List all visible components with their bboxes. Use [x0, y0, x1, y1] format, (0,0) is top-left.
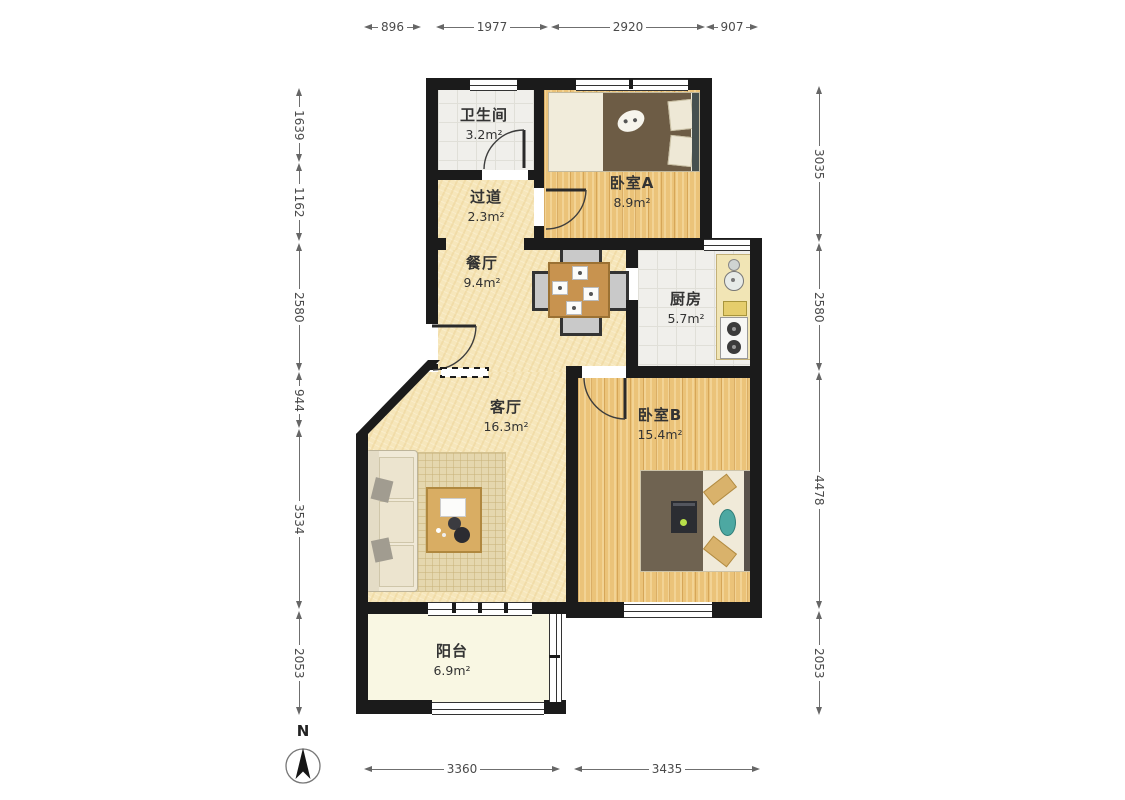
- burner-icon: [727, 322, 741, 336]
- room-name: 餐厅: [463, 252, 500, 273]
- dimension-top-2: 1977: [436, 20, 548, 34]
- entry-door-opening: [426, 324, 438, 364]
- wall: [712, 602, 762, 618]
- bedroom-b-door-opening: [582, 366, 626, 378]
- kitchen-window: [704, 239, 750, 251]
- sink-icon: [724, 271, 744, 291]
- room-area: 2.3m²: [467, 209, 504, 224]
- dimension-value: 4478: [813, 472, 825, 509]
- dimension-left-4: 944: [291, 372, 307, 428]
- dimension-value: 1639: [293, 107, 305, 144]
- room-label-kitchen: 厨房 5.7m²: [667, 288, 704, 326]
- dimension-value: 1162: [293, 184, 305, 221]
- dimension-value: 3360: [444, 763, 481, 775]
- dimension-top-4: 907: [706, 20, 758, 34]
- kitchen-counter: [716, 254, 752, 360]
- dimension-left-6: 2053: [291, 611, 307, 715]
- bed-b-pillow: [703, 474, 737, 506]
- room-area: 6.9m²: [433, 663, 470, 678]
- room-label-balcony: 阳台 6.9m²: [433, 640, 470, 678]
- coffee-table: [426, 487, 482, 553]
- room-area: 9.4m²: [463, 275, 500, 290]
- bed-b-cushion: [719, 509, 736, 536]
- dimension-value: 944: [293, 386, 305, 415]
- wall: [566, 372, 578, 602]
- wall: [524, 238, 544, 250]
- wall: [356, 602, 368, 714]
- room-label-hallway: 过道 2.3m²: [467, 186, 504, 224]
- dimension-bottom-1: 3360: [364, 762, 560, 776]
- compass-needle-icon: [296, 748, 311, 779]
- room-area: 16.3m²: [483, 419, 528, 434]
- wall: [626, 366, 762, 378]
- dimension-right-1: 3035: [811, 86, 827, 242]
- room-name: 阳台: [433, 640, 470, 661]
- burner-icon: [727, 340, 741, 354]
- dining-table: [548, 262, 610, 318]
- room-name: 卧室B: [637, 404, 682, 425]
- bed-a-pillow: [667, 99, 694, 131]
- wall: [626, 300, 638, 372]
- dimension-right-3: 4478: [811, 372, 827, 609]
- sofa: [366, 450, 418, 592]
- room-name: 卧室A: [610, 172, 655, 193]
- room-name: 过道: [467, 186, 504, 207]
- dimension-value: 2920: [610, 21, 647, 33]
- room-area: 8.9m²: [610, 195, 655, 210]
- wall: [750, 238, 762, 618]
- sofa-cushion: [379, 501, 414, 543]
- wall: [426, 170, 482, 180]
- bedroom-a-door-opening: [534, 188, 544, 226]
- wall: [426, 78, 438, 324]
- dimension-right-4: 2053: [811, 611, 827, 715]
- room-area: 5.7m²: [667, 311, 704, 326]
- balcony-bottom-window: [432, 702, 544, 715]
- bathroom-window: [470, 79, 517, 91]
- dimension-value: 3035: [813, 146, 825, 183]
- faucet-icon: [728, 259, 740, 271]
- compass-north-label: N: [297, 722, 310, 740]
- dimension-left-1: 1639: [291, 88, 307, 162]
- room-name: 厨房: [667, 288, 704, 309]
- dimension-value: 896: [378, 21, 407, 33]
- room-name: 客厅: [483, 396, 528, 417]
- balcony-side-window: [549, 614, 562, 702]
- window-mullion: [629, 79, 633, 89]
- window-mullion: [549, 655, 560, 658]
- dimension-value: 2580: [813, 289, 825, 326]
- vase-icon: [454, 527, 470, 543]
- bathroom-door-opening: [482, 170, 528, 180]
- compass-circle: [286, 749, 320, 783]
- dimension-left-2: 1162: [291, 163, 307, 241]
- wall: [544, 700, 566, 714]
- room-name: 卫生间: [460, 104, 508, 125]
- wall: [426, 238, 446, 250]
- bed-b-pillow: [703, 536, 737, 568]
- dimension-right-2: 2580: [811, 243, 827, 371]
- wall: [700, 78, 712, 250]
- wall: [534, 84, 544, 170]
- wall: [356, 700, 432, 714]
- room-label-living: 客厅 16.3m²: [483, 396, 528, 434]
- room-label-bedroom-b: 卧室B 15.4m²: [637, 404, 682, 442]
- dimension-value: 907: [718, 21, 747, 33]
- wall: [426, 364, 438, 370]
- dimension-value: 2580: [293, 289, 305, 326]
- bed-a-pillow: [667, 135, 694, 167]
- bedroom-b-window: [624, 604, 712, 618]
- room-label-dining: 餐厅 9.4m²: [463, 252, 500, 290]
- slider-panel-mark: [478, 603, 482, 613]
- bedroom-a-bed: [548, 92, 700, 172]
- dimension-left-3: 2580: [291, 243, 307, 371]
- wall: [534, 170, 544, 188]
- floor-plan: N 卫生间 3.2m² 过道 2.3m² 卧室A 8.9m² 餐厅 9.4m² …: [0, 0, 1125, 800]
- plate: [583, 287, 599, 301]
- wall: [356, 426, 368, 602]
- dimension-top-1: 896: [364, 20, 421, 34]
- wall: [626, 250, 638, 268]
- room-label-bedroom-a: 卧室A 8.9m²: [610, 172, 655, 210]
- room-area: 3.2m²: [460, 127, 508, 142]
- slider-panel-mark: [452, 603, 456, 613]
- dimension-left-5: 3534: [291, 429, 307, 609]
- tray: [440, 498, 466, 517]
- plate: [572, 266, 588, 280]
- dimension-top-3: 2920: [551, 20, 705, 34]
- bed-a-headboard: [692, 93, 699, 171]
- dimension-value: 3435: [649, 763, 686, 775]
- plate: [552, 281, 568, 295]
- slider-panel-mark: [504, 603, 508, 613]
- stove: [720, 317, 748, 359]
- dimension-value: 3534: [293, 501, 305, 538]
- wall: [566, 602, 624, 618]
- dimension-value: 1977: [474, 21, 511, 33]
- dimension-value: 2053: [293, 645, 305, 682]
- laptop-icon: [671, 501, 697, 533]
- dimension-bottom-2: 3435: [574, 762, 760, 776]
- plate: [566, 301, 582, 315]
- cutting-board: [723, 301, 747, 316]
- room-area: 15.4m²: [637, 427, 682, 442]
- room-label-bathroom: 卫生间 3.2m²: [460, 104, 508, 142]
- bedroom-b-bed: [640, 470, 752, 572]
- dimension-value: 2053: [813, 645, 825, 682]
